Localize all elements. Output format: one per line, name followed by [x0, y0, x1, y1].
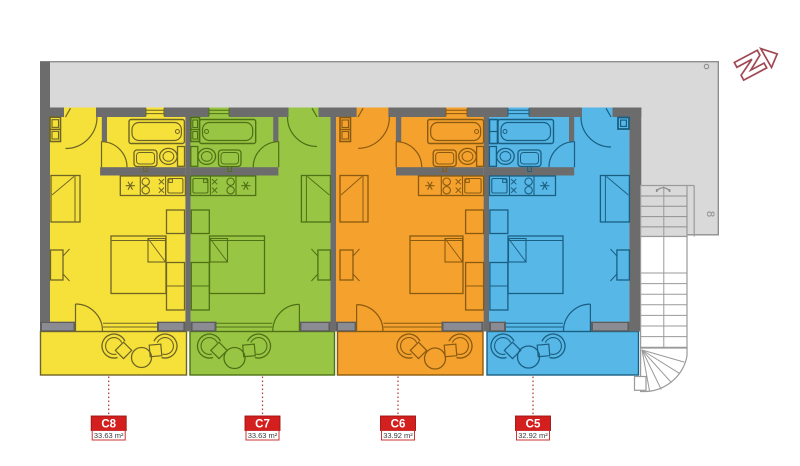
svg-text:8: 8: [704, 211, 716, 217]
svg-text:C8: C8: [101, 419, 116, 431]
svg-text:C6: C6: [391, 419, 406, 431]
svg-text:C7: C7: [255, 419, 270, 431]
svg-text:33.92 m²: 33.92 m²: [383, 431, 413, 440]
svg-text:32.92 m²: 32.92 m²: [518, 431, 548, 440]
svg-text:33.63 m²: 33.63 m²: [94, 431, 124, 440]
svg-text:33.63 m²: 33.63 m²: [248, 431, 278, 440]
svg-text:C5: C5: [526, 419, 541, 431]
